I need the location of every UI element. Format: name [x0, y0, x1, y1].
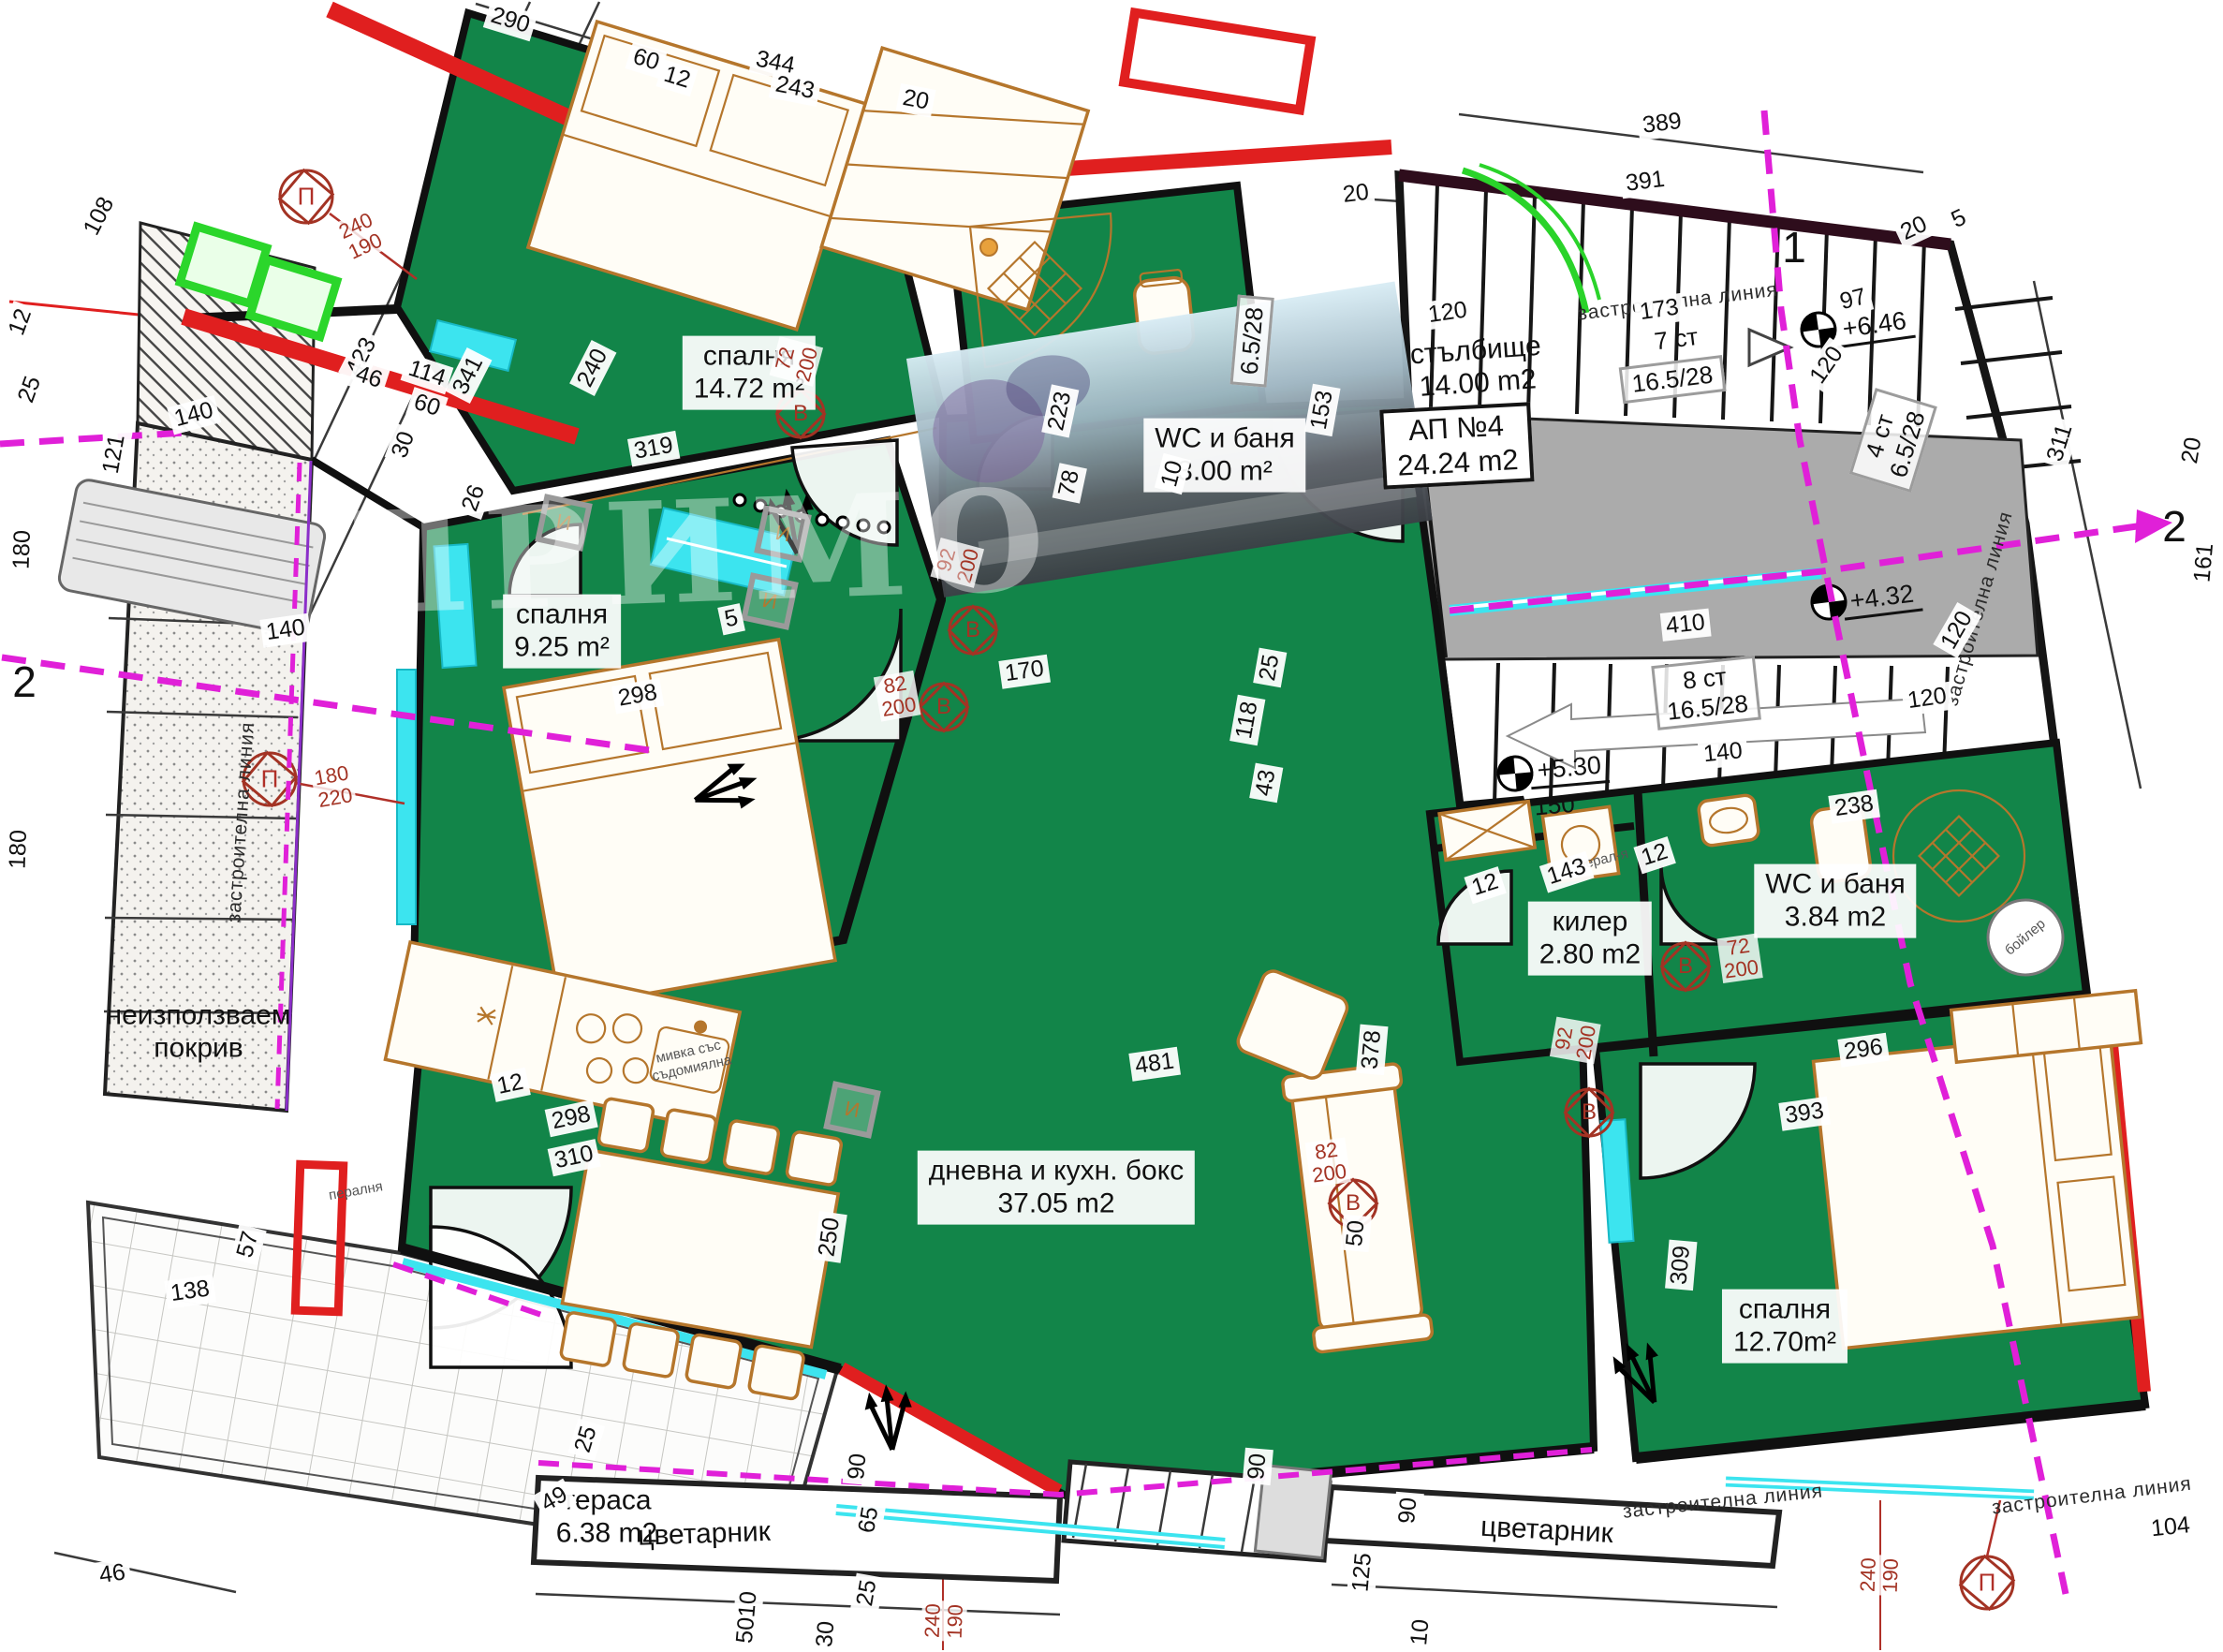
- label-plain: 150: [1533, 789, 1576, 821]
- label-red: 92 200: [1550, 1017, 1600, 1064]
- floor-plan-page: спалня 14.72 m²WC и баня 3.00 m²стълбище…: [0, 0, 2223, 1652]
- plan-drawing: [0, 0, 2223, 1652]
- window-symbol-letter: П: [1979, 1569, 1996, 1598]
- label-wc-2: WC и баня 3.84 m2: [1754, 864, 1916, 938]
- label-red: 82 200: [1305, 1138, 1351, 1187]
- vent-shaft-letter: В: [1346, 1190, 1361, 1217]
- label-staircase: стълбище 14.00 m2: [1409, 330, 1545, 405]
- label-red: 240 190: [1857, 1555, 1903, 1596]
- label-red: 240 190: [921, 1600, 967, 1642]
- label-dim: 180: [4, 825, 33, 875]
- radiator: [434, 544, 477, 668]
- label-dim: 309: [1665, 1240, 1697, 1291]
- label-dim: 90: [1393, 1492, 1424, 1529]
- label-dim: 30: [811, 1615, 842, 1652]
- sink-2: [1698, 794, 1759, 847]
- section-mark-2: 2: [2162, 501, 2186, 552]
- vent-shaft-letter: В: [793, 401, 808, 427]
- section-mark-2b: 2: [12, 656, 37, 707]
- label-dim: 161: [2188, 538, 2220, 588]
- window-symbol-letter: П: [298, 183, 316, 212]
- label-planter-1: цветарник: [638, 1515, 772, 1553]
- stair-count-7: 7 ст: [1653, 322, 1700, 356]
- label-dim: 389: [1637, 107, 1688, 140]
- label-apartment-4: АП №4 24.24 m2: [1379, 402, 1535, 489]
- label-dim: 90: [1243, 1448, 1273, 1485]
- label-red: 72 200: [1717, 934, 1763, 983]
- label-dim: 104: [2145, 1512, 2197, 1544]
- vent-shaft-letter: В: [1582, 1099, 1597, 1126]
- stair-rise-run-2: 8 ст 16.5/28: [1651, 656, 1760, 731]
- label-dim: 10: [1406, 1614, 1436, 1651]
- label-dim: 378: [1356, 1025, 1388, 1075]
- label-dim: 391: [1620, 165, 1671, 199]
- label-storage: килер 2.80 m2: [1528, 902, 1652, 976]
- label-red: 180 220: [310, 761, 357, 812]
- vent-shaft-letter: В: [1678, 953, 1693, 980]
- vent-shaft-letter: В: [936, 694, 951, 720]
- label-bedroom-3: спалня 12.70m²: [1722, 1290, 1848, 1364]
- label-red: 82 200: [874, 671, 920, 721]
- label-bedroom-2: спалня 9.25 m²: [503, 595, 621, 669]
- label-dim: 20: [1336, 178, 1375, 210]
- level-530: +5.30: [1528, 750, 1610, 789]
- vent-shaft-letter: В: [965, 617, 980, 643]
- window-symbol-letter: П: [261, 765, 279, 794]
- bed-2: [504, 640, 835, 1009]
- label-dim: 180: [7, 525, 37, 575]
- label-dim: 5010: [730, 1586, 763, 1649]
- window-red-top: [1124, 13, 1310, 111]
- label-dim: 90: [843, 1448, 874, 1485]
- window-cyan-left: [397, 670, 416, 924]
- label-unused-roof: неизползваем покрив: [107, 999, 291, 1066]
- label-dim: 46: [93, 1558, 132, 1590]
- label-dim: 50: [1341, 1215, 1372, 1252]
- section-mark-1: 1: [1782, 222, 1806, 273]
- label-dim: 125: [1347, 1547, 1378, 1598]
- label-dim: 410: [1660, 609, 1712, 642]
- label-planter-2: цветарник: [1480, 1511, 1613, 1551]
- label-dim: 140: [1698, 737, 1749, 770]
- label-living-kitchen: дневна и кухн. бокс 37.05 m2: [918, 1151, 1195, 1225]
